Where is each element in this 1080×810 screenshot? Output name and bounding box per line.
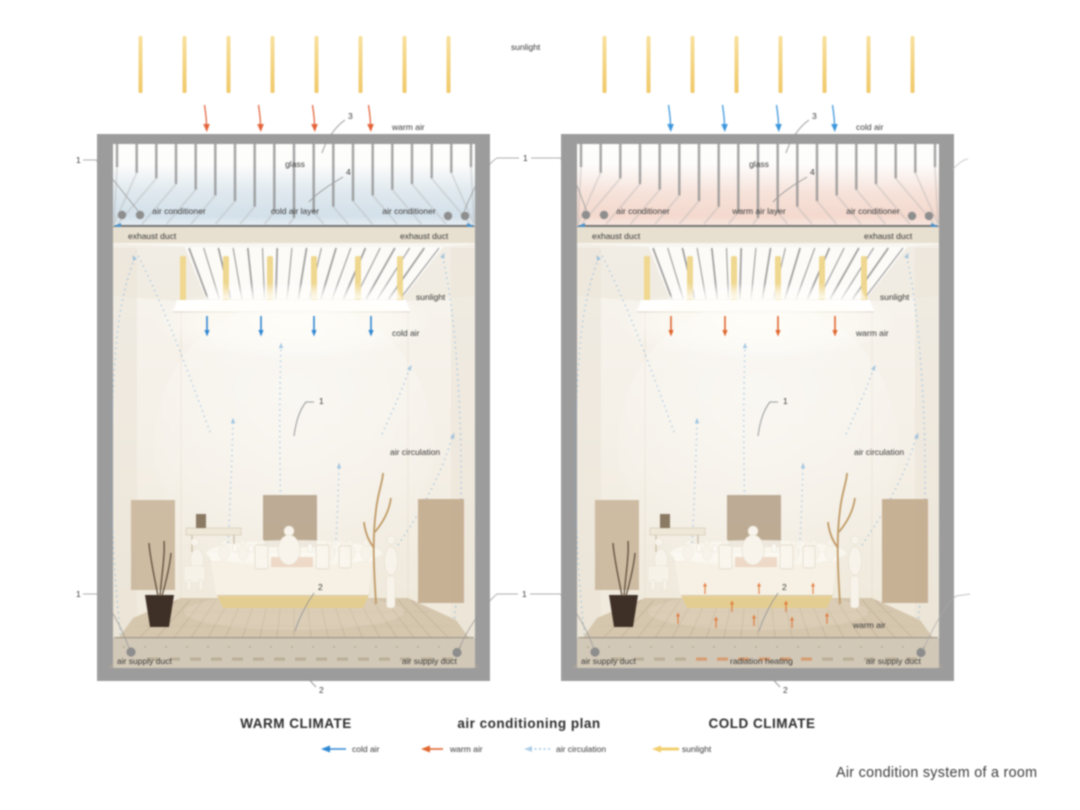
- svg-text:warm air: warm air: [855, 328, 889, 338]
- svg-text:2: 2: [319, 685, 324, 695]
- svg-text:cold air: cold air: [352, 744, 380, 754]
- svg-text:air conditioner: air conditioner: [616, 206, 670, 216]
- svg-text:3: 3: [348, 111, 353, 121]
- svg-text:1: 1: [523, 153, 528, 163]
- svg-text:air supply duct: air supply duct: [581, 656, 636, 666]
- svg-text:sunlight: sunlight: [682, 744, 712, 754]
- svg-text:4: 4: [346, 167, 351, 177]
- svg-text:air conditioner: air conditioner: [846, 206, 900, 216]
- svg-text:air circulation: air circulation: [854, 447, 904, 457]
- svg-text:air supply duct: air supply duct: [402, 656, 457, 666]
- svg-text:1: 1: [783, 396, 788, 406]
- svg-text:exhaust duct: exhaust duct: [128, 231, 177, 241]
- svg-text:glass: glass: [285, 159, 305, 169]
- svg-text:warm air layer: warm air layer: [731, 206, 786, 216]
- svg-text:cold air: cold air: [856, 122, 884, 132]
- svg-text:sunlight: sunlight: [416, 292, 446, 302]
- svg-text:exhaust duct: exhaust duct: [400, 231, 449, 241]
- svg-text:radiation heating: radiation heating: [730, 656, 793, 666]
- svg-text:3: 3: [812, 111, 817, 121]
- svg-text:cold air: cold air: [392, 328, 420, 338]
- svg-text:WARM CLIMATE: WARM CLIMATE: [240, 716, 351, 731]
- svg-text:air supply duct: air supply duct: [117, 656, 172, 666]
- svg-text:sunlight: sunlight: [511, 42, 541, 52]
- svg-text:2: 2: [783, 685, 788, 695]
- svg-text:warm air: warm air: [449, 744, 483, 754]
- svg-text:1: 1: [522, 589, 527, 599]
- svg-text:warm air: warm air: [852, 620, 886, 630]
- svg-text:1: 1: [76, 155, 81, 165]
- svg-text:warm air: warm air: [391, 122, 425, 132]
- svg-text:air supply duct: air supply duct: [866, 656, 921, 666]
- svg-text:exhaust duct: exhaust duct: [592, 231, 641, 241]
- svg-text:Air condition system of a room: Air condition system of a room: [836, 765, 1037, 781]
- svg-text:air circulation: air circulation: [556, 744, 606, 754]
- svg-text:cold air layer: cold air layer: [271, 206, 319, 216]
- svg-text:air conditioning plan: air conditioning plan: [457, 716, 600, 731]
- svg-text:1: 1: [319, 396, 324, 406]
- svg-text:glass: glass: [749, 159, 769, 169]
- svg-text:4: 4: [810, 167, 815, 177]
- svg-text:air conditioner: air conditioner: [152, 206, 206, 216]
- svg-text:sunlight: sunlight: [880, 292, 910, 302]
- svg-text:exhaust duct: exhaust duct: [864, 231, 913, 241]
- svg-text:2: 2: [318, 582, 323, 592]
- svg-text:1: 1: [76, 589, 81, 599]
- svg-text:2: 2: [782, 582, 787, 592]
- svg-text:air circulation: air circulation: [390, 447, 440, 457]
- svg-text:COLD CLIMATE: COLD CLIMATE: [709, 716, 816, 731]
- svg-text:air conditioner: air conditioner: [382, 206, 436, 216]
